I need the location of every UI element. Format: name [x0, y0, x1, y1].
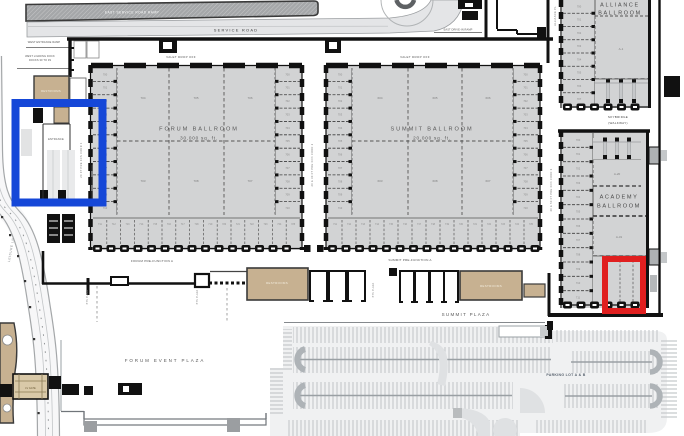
svg-text:VALET DROP OFF: VALET DROP OFF: [166, 55, 196, 59]
svg-text:711: 711: [576, 296, 581, 300]
svg-text:702: 702: [523, 99, 528, 103]
svg-text:720: 720: [459, 223, 464, 226]
svg-text:705: 705: [577, 71, 582, 75]
svg-text:20 & 30 FT PRE FCN CORR 2: 20 & 30 FT PRE FCN CORR 2: [310, 143, 314, 186]
svg-text:BTS PLAZA: BTS PLAZA: [86, 289, 89, 304]
svg-text:703: 703: [576, 181, 581, 185]
svg-text:706: 706: [285, 153, 290, 157]
svg-text:SKYBRIDGE: SKYBRIDGE: [608, 115, 628, 119]
svg-text:704: 704: [338, 126, 343, 130]
svg-text:709: 709: [285, 193, 290, 197]
svg-text:701: 701: [576, 152, 581, 156]
svg-text:710: 710: [103, 206, 108, 210]
svg-text:ALLIANCE PL: ALLIANCE PL: [553, 6, 557, 26]
svg-text:717: 717: [181, 223, 186, 226]
svg-text:718: 718: [195, 223, 200, 226]
svg-text:717: 717: [417, 223, 422, 226]
svg-text:605: 605: [432, 96, 437, 100]
svg-text:703: 703: [140, 179, 145, 183]
svg-text:VALET DROP OFF: VALET DROP OFF: [400, 55, 430, 59]
svg-text:705: 705: [576, 210, 581, 214]
svg-text:WEST LOADING DOCK: WEST LOADING DOCK: [25, 54, 55, 58]
svg-text:EAST DRIVE-IN RAMP: EAST DRIVE-IN RAMP: [444, 28, 473, 32]
svg-text:714: 714: [139, 223, 144, 226]
svg-text:RESTROOMS: RESTROOMS: [266, 281, 288, 285]
svg-text:ENTRANCE: ENTRANCE: [48, 137, 64, 141]
svg-text:711: 711: [98, 223, 102, 226]
svg-text:LV GATE: LV GATE: [25, 386, 36, 390]
svg-text:700: 700: [338, 72, 343, 76]
svg-text:701: 701: [285, 86, 290, 90]
svg-text:701: 701: [103, 86, 108, 90]
svg-text:701: 701: [338, 86, 343, 90]
svg-text:ALLIANCE: ALLIANCE: [600, 3, 640, 9]
svg-text:713: 713: [126, 223, 131, 226]
svg-text:20,000 sq. ft.: 20,000 sq. ft.: [413, 136, 451, 141]
svg-text:710: 710: [523, 206, 528, 210]
svg-text:604: 604: [377, 96, 382, 100]
svg-text:719: 719: [445, 223, 450, 226]
svg-text:A-31: A-31: [616, 235, 623, 239]
svg-text:708: 708: [576, 253, 581, 257]
svg-text:607: 607: [485, 179, 490, 183]
svg-text:A-1: A-1: [619, 47, 624, 51]
svg-text:723: 723: [264, 223, 269, 226]
svg-text:ACADEMY: ACADEMY: [600, 195, 639, 201]
svg-text:707: 707: [247, 179, 252, 183]
svg-text:714: 714: [375, 223, 380, 226]
svg-text:BALLROOM: BALLROOM: [597, 204, 641, 210]
svg-text:603: 603: [377, 179, 382, 183]
svg-text:718: 718: [431, 223, 436, 226]
svg-text:703: 703: [338, 112, 343, 116]
svg-text:725: 725: [291, 223, 296, 226]
svg-text:709: 709: [576, 267, 581, 271]
svg-text:710: 710: [285, 206, 290, 210]
svg-text:716: 716: [167, 223, 172, 226]
svg-text:DOCKS 30 TO 39: DOCKS 30 TO 39: [29, 58, 52, 62]
svg-text:BALLROOM: BALLROOM: [598, 11, 642, 17]
svg-text:720: 720: [222, 223, 227, 226]
svg-text:SERVICE ROAD: SERVICE ROAD: [214, 28, 259, 33]
svg-text:40 & 50 FT PRE FCN CORR 3: 40 & 50 FT PRE FCN CORR 3: [549, 168, 553, 211]
svg-text:700: 700: [523, 72, 528, 76]
svg-text:708: 708: [338, 179, 343, 183]
svg-text:703: 703: [577, 44, 582, 48]
svg-text:708: 708: [285, 179, 290, 183]
svg-text:713: 713: [361, 223, 366, 226]
svg-text:704: 704: [523, 126, 528, 130]
svg-text:704: 704: [576, 195, 581, 199]
svg-text:A-20: A-20: [614, 172, 621, 176]
svg-text:703: 703: [523, 112, 528, 116]
svg-text:706: 706: [338, 153, 343, 157]
svg-text:710: 710: [338, 206, 343, 210]
svg-text:725: 725: [529, 223, 534, 226]
svg-text:724: 724: [277, 223, 282, 226]
svg-text:RESTROOMS: RESTROOMS: [41, 89, 61, 93]
svg-text:(WALKWAY): (WALKWAY): [608, 121, 628, 125]
svg-text:701: 701: [523, 86, 528, 90]
svg-text:719: 719: [208, 223, 213, 226]
svg-text:SUMMIT PLAZA: SUMMIT PLAZA: [442, 312, 491, 317]
svg-text:30,000 sq. ft.: 30,000 sq. ft.: [180, 136, 218, 141]
svg-text:715: 715: [153, 223, 158, 226]
svg-text:706: 706: [577, 84, 582, 88]
svg-text:PARKING LOT A & B: PARKING LOT A & B: [546, 373, 585, 377]
svg-text:712: 712: [347, 223, 352, 226]
svg-text:705: 705: [523, 139, 528, 143]
svg-text:705: 705: [193, 96, 198, 100]
svg-text:RESTROOMS: RESTROOMS: [480, 284, 502, 288]
svg-text:709: 709: [338, 193, 343, 197]
svg-text:706: 706: [576, 224, 581, 228]
svg-text:724: 724: [515, 223, 520, 226]
svg-text:709: 709: [523, 193, 528, 197]
svg-text:FORUM EVENT PLAZA: FORUM EVENT PLAZA: [125, 358, 205, 363]
svg-text:BTS PLAZA: BTS PLAZA: [196, 289, 199, 304]
svg-text:705: 705: [285, 139, 290, 143]
svg-text:707: 707: [577, 97, 582, 101]
svg-text:SUMMIT PRE-FUNCTION A: SUMMIT PRE-FUNCTION A: [388, 258, 432, 262]
svg-text:WEST ENTRANCE RAMP: WEST ENTRANCE RAMP: [28, 40, 61, 44]
svg-text:708: 708: [523, 179, 528, 183]
svg-text:716: 716: [403, 223, 408, 226]
svg-text:SUMMIT BALLROOM: SUMMIT BALLROOM: [390, 127, 473, 133]
svg-text:606: 606: [485, 96, 490, 100]
svg-text:608: 608: [432, 179, 437, 183]
svg-text:BTS PLAZA: BTS PLAZA: [372, 282, 375, 297]
svg-text:700: 700: [285, 72, 290, 76]
svg-text:712: 712: [112, 223, 117, 226]
svg-text:701: 701: [577, 18, 582, 22]
svg-text:704: 704: [285, 126, 290, 130]
svg-text:FORUM BALLROOM: FORUM BALLROOM: [159, 127, 239, 133]
svg-text:707: 707: [338, 166, 343, 170]
svg-text:722: 722: [250, 223, 255, 226]
svg-text:705: 705: [338, 139, 343, 143]
svg-text:703: 703: [285, 112, 290, 116]
svg-text:20 FT PRE FCN CORR 1: 20 FT PRE FCN CORR 1: [79, 142, 83, 178]
svg-text:704: 704: [577, 57, 582, 61]
svg-text:704: 704: [140, 96, 145, 100]
svg-text:706: 706: [523, 153, 528, 157]
svg-text:700: 700: [577, 4, 582, 8]
svg-text:707: 707: [285, 166, 290, 170]
svg-text:700: 700: [576, 138, 581, 142]
svg-text:702: 702: [577, 31, 582, 35]
svg-text:721: 721: [236, 223, 241, 226]
svg-text:711: 711: [333, 223, 337, 226]
svg-text:702: 702: [285, 99, 290, 103]
svg-text:702: 702: [338, 99, 343, 103]
svg-text:708: 708: [193, 179, 198, 183]
svg-text:715: 715: [389, 223, 394, 226]
svg-text:721: 721: [473, 223, 478, 226]
svg-text:723: 723: [501, 223, 506, 226]
svg-text:706: 706: [247, 96, 252, 100]
svg-text:702: 702: [576, 167, 581, 171]
svg-text:FORUM PRE-FUNCTION A: FORUM PRE-FUNCTION A: [131, 259, 174, 263]
svg-text:700: 700: [103, 72, 108, 76]
svg-text:707: 707: [523, 166, 528, 170]
svg-text:722: 722: [487, 223, 492, 226]
svg-text:EAST SERVICE ROAD RAMP: EAST SERVICE ROAD RAMP: [105, 11, 159, 15]
svg-text:707: 707: [576, 238, 581, 242]
svg-text:710: 710: [576, 281, 581, 285]
